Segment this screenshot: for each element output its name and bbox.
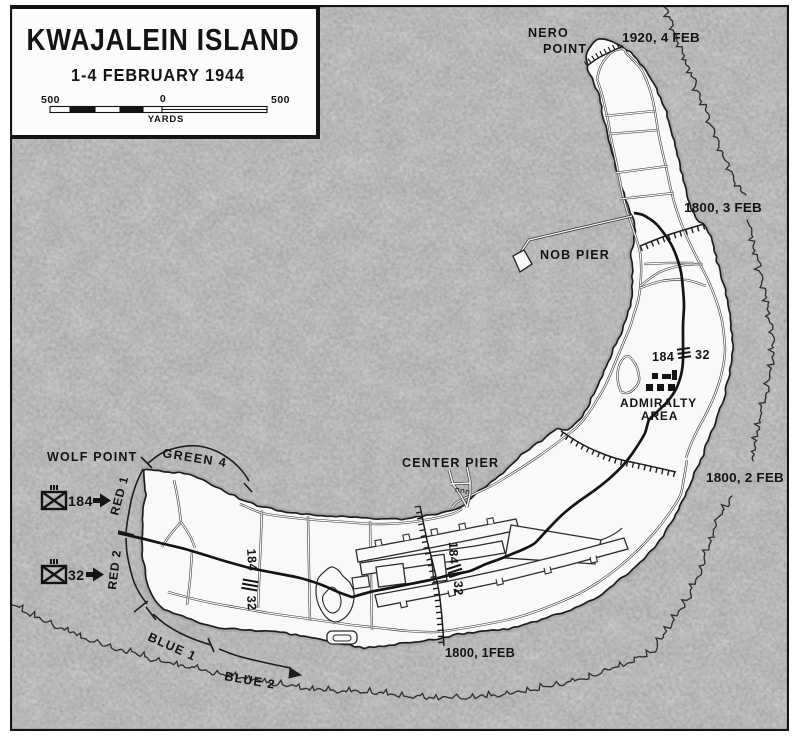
svg-text:500: 500 — [41, 94, 60, 106]
svg-text:1-4 FEBRUARY 1944: 1-4 FEBRUARY 1944 — [71, 65, 245, 85]
svg-text:WOLF POINT: WOLF POINT — [47, 450, 137, 464]
svg-text:NOB PIER: NOB PIER — [540, 248, 610, 262]
svg-text:184: 184 — [244, 548, 260, 571]
svg-text:32: 32 — [695, 348, 710, 362]
svg-text:AREA: AREA — [641, 409, 678, 423]
svg-text:500: 500 — [271, 94, 290, 106]
svg-text:32: 32 — [451, 581, 466, 596]
svg-text:184: 184 — [446, 542, 461, 565]
svg-text:ADMIRALTY: ADMIRALTY — [620, 396, 697, 410]
svg-text:1800, 1FEB: 1800, 1FEB — [445, 646, 515, 660]
svg-text:YARDS: YARDS — [148, 114, 184, 125]
svg-text:1920, 4 FEB: 1920, 4 FEB — [622, 31, 700, 45]
svg-text:1800, 2 FEB: 1800, 2 FEB — [706, 471, 784, 485]
svg-text:CENTER PIER: CENTER PIER — [402, 456, 499, 470]
svg-text:184: 184 — [652, 350, 674, 364]
svg-text:32: 32 — [68, 567, 85, 583]
svg-text:184: 184 — [68, 493, 93, 509]
svg-text:KWAJALEIN ISLAND: KWAJALEIN ISLAND — [27, 22, 300, 57]
svg-text:32: 32 — [244, 595, 259, 611]
svg-text:0: 0 — [160, 93, 166, 105]
svg-text:NERO: NERO — [528, 26, 569, 40]
svg-text:1800, 3 FEB: 1800, 3 FEB — [684, 201, 762, 215]
svg-text:POINT: POINT — [543, 42, 587, 56]
